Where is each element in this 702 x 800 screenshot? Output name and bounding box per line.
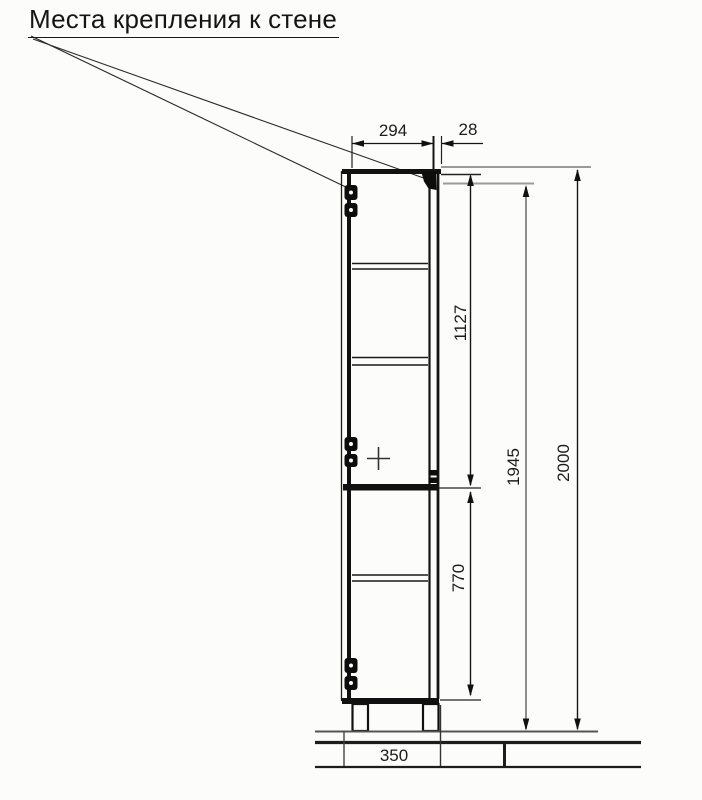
cabinet-leg-back (423, 704, 439, 731)
technical-drawing: Места крепления к стене 294 28 1127 1945… (0, 0, 702, 800)
leader-line-left-bracket (31, 36, 350, 189)
cabinet-mid-divider (343, 484, 438, 491)
drawing-linework (0, 0, 702, 800)
leader-line-right-bracket (33, 39, 432, 181)
dim-label-upper-section-height: 1127 (451, 305, 471, 342)
dim-label-lower-section-height: 770 (449, 564, 469, 592)
drawing-title: Места крепления к стене (28, 4, 339, 38)
dim-label-cabinet-depth: 294 (379, 121, 407, 141)
cabinet-leg-front (353, 704, 369, 731)
shelf-lines (352, 264, 428, 582)
center-cross-mark (367, 447, 390, 470)
dim-label-total-height: 2000 (554, 444, 574, 482)
dim-label-mounting-height: 1945 (504, 448, 524, 486)
dim-label-back-offset: 28 (459, 120, 478, 140)
wall-mount-bracket (422, 171, 437, 190)
leader-lines (31, 36, 432, 189)
cabinet-door-panel (347, 171, 351, 701)
dim-label-base-depth: 350 (380, 746, 408, 766)
extension-lines (352, 136, 591, 700)
dimension-lines (352, 140, 581, 730)
